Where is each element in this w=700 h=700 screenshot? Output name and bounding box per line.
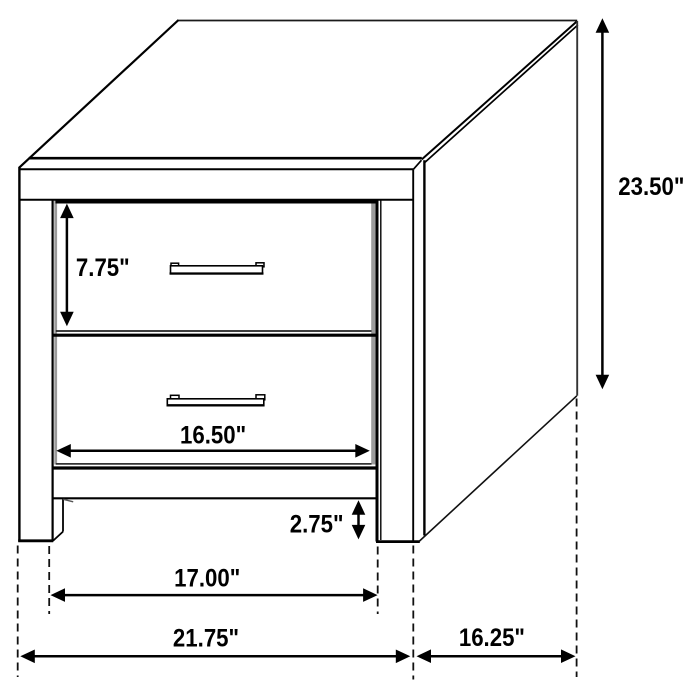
svg-text:23.50": 23.50" bbox=[618, 173, 684, 200]
svg-text:21.75": 21.75" bbox=[173, 625, 239, 652]
svg-text:16.50": 16.50" bbox=[180, 422, 246, 449]
svg-text:17.00": 17.00" bbox=[174, 565, 240, 592]
svg-text:7.75": 7.75" bbox=[76, 254, 130, 281]
svg-text:2.75": 2.75" bbox=[290, 511, 344, 538]
svg-text:16.25": 16.25" bbox=[459, 624, 525, 651]
